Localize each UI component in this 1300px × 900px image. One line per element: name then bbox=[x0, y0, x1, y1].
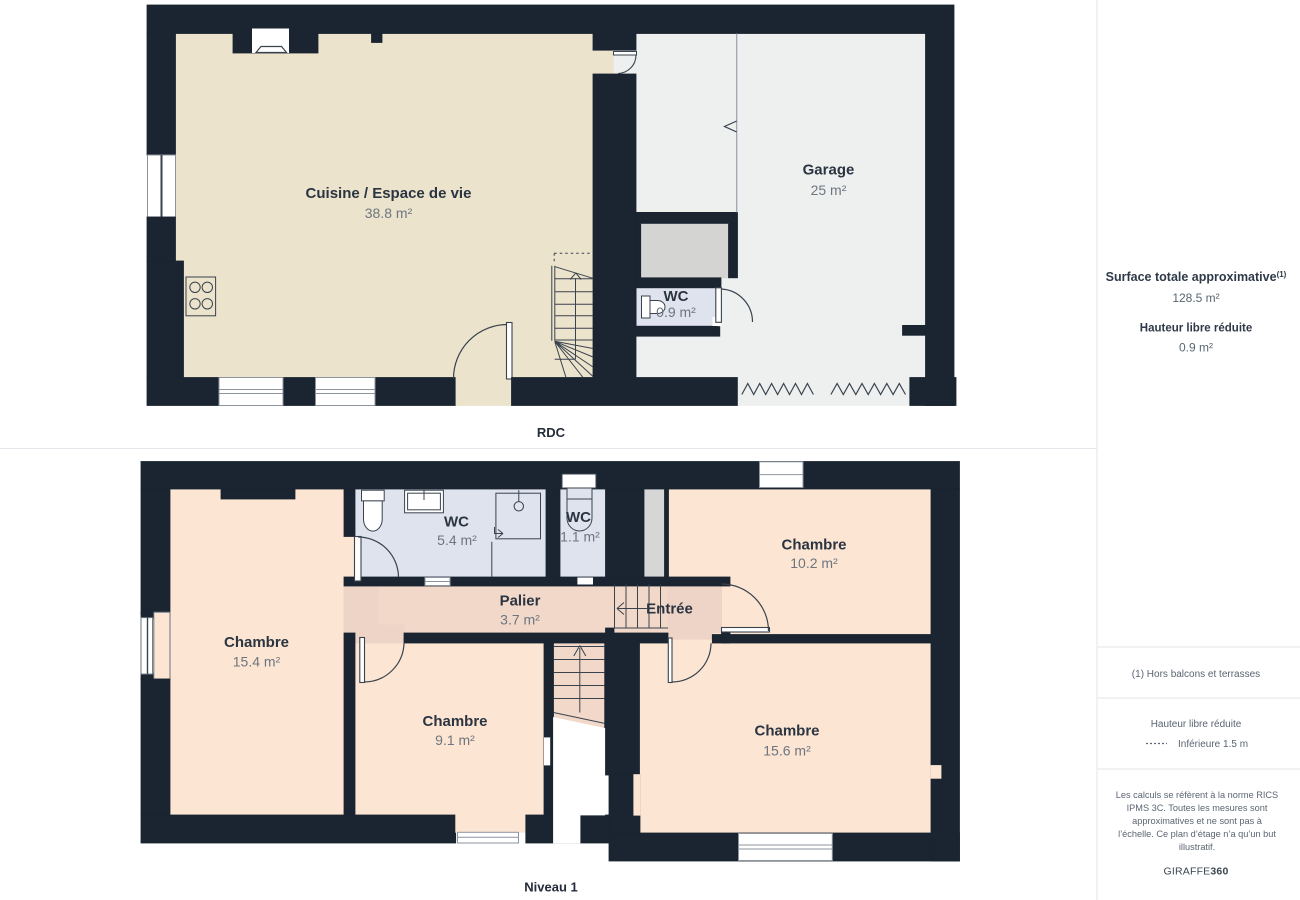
svg-text:Les calculs se réfèrent à la n: Les calculs se réfèrent à la norme RICS bbox=[1116, 790, 1278, 800]
svg-text:Hauteur libre réduite: Hauteur libre réduite bbox=[1151, 719, 1242, 730]
svg-text:Palier: Palier bbox=[500, 593, 541, 610]
svg-text:5.4 m²: 5.4 m² bbox=[437, 532, 477, 548]
svg-text:Inférieure 1.5 m: Inférieure 1.5 m bbox=[1178, 739, 1248, 750]
svg-text:1.1 m²: 1.1 m² bbox=[560, 529, 600, 545]
svg-text:Hauteur libre réduite: Hauteur libre réduite bbox=[1140, 323, 1252, 335]
svg-text:Cuisine / Espace de vie: Cuisine / Espace de vie bbox=[306, 185, 472, 202]
svg-text:Garage: Garage bbox=[803, 162, 855, 179]
svg-text:38.8 m²: 38.8 m² bbox=[365, 205, 413, 221]
svg-text:WC: WC bbox=[566, 509, 591, 526]
svg-text:approximatives et ne sont pas: approximatives et ne sont pas à bbox=[1132, 816, 1263, 826]
svg-text:10.2 m²: 10.2 m² bbox=[790, 555, 838, 571]
svg-text:IPMS 3C. Toutes les mesures so: IPMS 3C. Toutes les mesures sont bbox=[1127, 803, 1268, 813]
svg-text:illustratif.: illustratif. bbox=[1179, 842, 1215, 852]
svg-text:3.7 m²: 3.7 m² bbox=[500, 612, 540, 628]
svg-text:15.6 m²: 15.6 m² bbox=[763, 743, 811, 759]
svg-text:Niveau 1: Niveau 1 bbox=[524, 880, 577, 895]
svg-text:Entrée: Entrée bbox=[646, 601, 693, 618]
svg-text:(1) Hors balcons et terrasses: (1) Hors balcons et terrasses bbox=[1132, 669, 1260, 680]
svg-text:Surface totale approximative(1: Surface totale approximative(1) bbox=[1106, 270, 1287, 284]
svg-text:128.5 m²: 128.5 m² bbox=[1172, 291, 1219, 305]
svg-text:RDC: RDC bbox=[537, 425, 566, 440]
svg-text:0.9 m²: 0.9 m² bbox=[1179, 341, 1213, 355]
svg-text:Chambre: Chambre bbox=[781, 537, 846, 554]
svg-text:0.9 m²: 0.9 m² bbox=[656, 304, 696, 320]
svg-text:Chambre: Chambre bbox=[224, 634, 289, 651]
svg-text:15.4 m²: 15.4 m² bbox=[233, 654, 281, 670]
svg-text:WC: WC bbox=[444, 514, 469, 531]
svg-text:25 m²: 25 m² bbox=[811, 182, 847, 198]
svg-text:GIRAFFE360: GIRAFFE360 bbox=[1163, 866, 1228, 878]
svg-text:9.1 m²: 9.1 m² bbox=[435, 732, 475, 748]
svg-text:WC: WC bbox=[664, 288, 689, 305]
svg-text:Chambre: Chambre bbox=[422, 713, 487, 730]
svg-text:Chambre: Chambre bbox=[754, 723, 819, 740]
svg-text:l’échelle. Ce plan d’étage n’a: l’échelle. Ce plan d’étage n’a qu’un but bbox=[1118, 829, 1276, 839]
